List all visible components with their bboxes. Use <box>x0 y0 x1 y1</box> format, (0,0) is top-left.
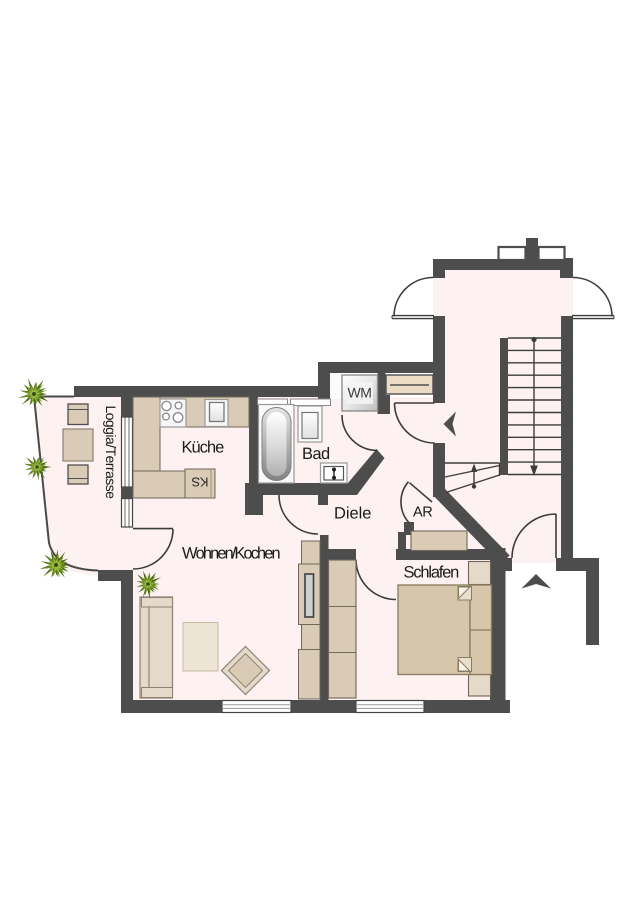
svg-text:KS: KS <box>191 475 208 490</box>
